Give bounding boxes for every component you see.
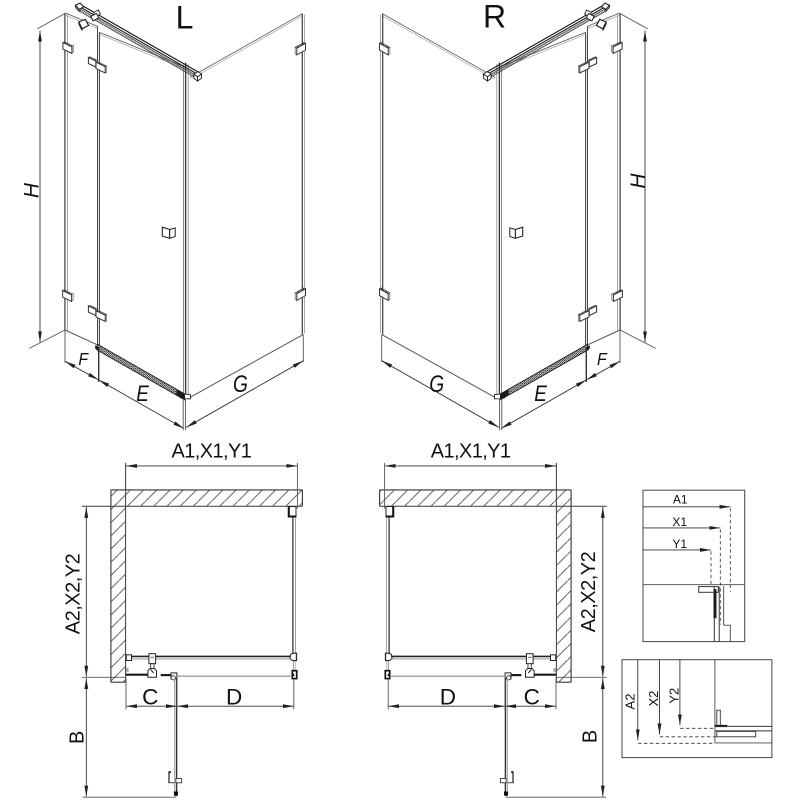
svg-text:Y2: Y2: [667, 688, 682, 704]
svg-text:C: C: [142, 685, 158, 710]
svg-text:R: R: [483, 0, 506, 35]
svg-text:B: B: [579, 730, 601, 743]
svg-text:E: E: [534, 382, 547, 407]
svg-text:X2: X2: [646, 691, 661, 707]
svg-text:A2,X2,Y2: A2,X2,Y2: [62, 553, 84, 634]
svg-text:L: L: [176, 0, 194, 35]
svg-text:G: G: [429, 370, 444, 398]
svg-text:H: H: [21, 182, 44, 198]
svg-text:D: D: [440, 685, 456, 710]
svg-text:G: G: [233, 370, 248, 398]
svg-text:A1,X1,Y1: A1,X1,Y1: [172, 441, 252, 463]
svg-text:F: F: [78, 349, 89, 369]
svg-text:B: B: [66, 731, 88, 744]
svg-text:A2,X2,Y2: A2,X2,Y2: [578, 551, 600, 632]
svg-text:X1: X1: [672, 515, 687, 529]
svg-text:H: H: [627, 173, 650, 189]
svg-text:A1: A1: [673, 493, 688, 507]
svg-text:C: C: [524, 685, 540, 710]
svg-text:A1,X1,Y1: A1,X1,Y1: [431, 441, 511, 463]
svg-text:E: E: [136, 382, 149, 407]
svg-text:D: D: [226, 685, 242, 710]
svg-text:A2: A2: [623, 694, 638, 710]
svg-text:F: F: [597, 349, 608, 369]
svg-text:Y1: Y1: [672, 537, 687, 551]
